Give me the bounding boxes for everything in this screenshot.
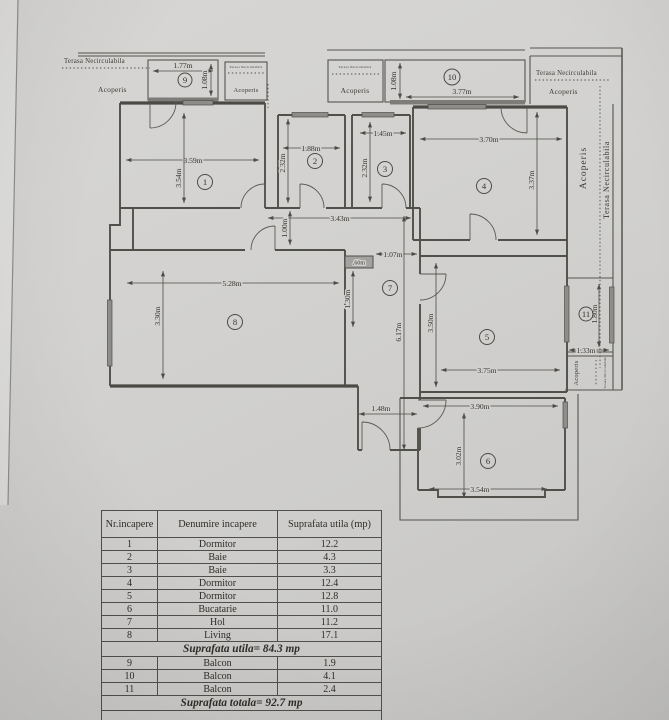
- terasa-label: Terasa Necirculabila: [536, 70, 597, 77]
- dim-balcony10-depth: 1.08m: [389, 71, 398, 90]
- table-cell: 12.2: [278, 538, 382, 551]
- terasa-label-small: Terasa Necirculabila: [230, 65, 263, 69]
- dim-corridor-height: 1.00m: [280, 218, 289, 237]
- room-number-11: 11: [582, 309, 590, 319]
- roof-outline: [78, 48, 622, 520]
- dim-room8-width: 5.28m: [222, 279, 241, 288]
- dim-hall-width: 1.07m: [383, 250, 402, 259]
- subtotal-text: Suprafata utila= 84.3 mp: [102, 642, 382, 657]
- table-cell: 11: [102, 683, 158, 696]
- dim-room4-width: 3.70m: [479, 135, 498, 144]
- terrace-left: Terasa Necirculabila Acoperis: [62, 58, 150, 94]
- room-5: 3.50m 3.75m 5: [426, 263, 560, 387]
- table-cell: 8: [102, 629, 158, 642]
- room-number-6: 6: [486, 456, 491, 466]
- acoperis-label: Acoperis: [549, 87, 578, 96]
- paper-edge: [0, 0, 18, 505]
- table-cell: Dormitor: [158, 538, 278, 551]
- dim-room8-height: 3.30m: [153, 306, 162, 325]
- table-cell: Dormitor: [158, 577, 278, 590]
- table-cell: Bucatarie: [158, 603, 278, 616]
- empty-row: [102, 711, 382, 720]
- room-number-8: 8: [233, 317, 237, 327]
- table-row: 8Living17.1: [102, 629, 382, 642]
- subtotal-row: Suprafata utila= 84.3 mp: [102, 642, 382, 657]
- table-cell: 6: [102, 603, 158, 616]
- table-cell: 11.0: [278, 603, 382, 616]
- room-number-1: 1: [203, 177, 207, 187]
- table-cell: 4: [102, 577, 158, 590]
- room-number-2: 2: [313, 156, 317, 166]
- table-cell: 11.2: [278, 616, 382, 629]
- hall-7: 3.43m 1.00m 1.07m .60m 1.30m 6.17m 1.48m…: [268, 211, 417, 450]
- table-cell: 12.8: [278, 590, 382, 603]
- table-row: 10Balcon4.1: [102, 670, 382, 683]
- table-cell: Hol: [158, 616, 278, 629]
- table-cell: Balcon: [158, 657, 278, 670]
- acoperis-label: Acoperis: [98, 85, 127, 94]
- dim-balcony9-depth: 1.08m: [200, 70, 209, 89]
- table-cell: Balcon: [158, 683, 278, 696]
- room-2: 1.88m 2.32m 2: [278, 119, 340, 203]
- table-cell: Baie: [158, 551, 278, 564]
- dim-room3-width: 1.45m: [373, 129, 392, 138]
- table-cell: 5: [102, 590, 158, 603]
- dim-hall-height: 6.17m: [394, 322, 403, 341]
- total-row: Suprafata totala= 92.7 mp: [102, 696, 382, 711]
- acoperis-label: Acoperis: [341, 86, 370, 95]
- table-row: 1Dormitor12.2: [102, 538, 382, 551]
- scanned-floor-plan-photo: Terasa Necirculabila Acoperis 1.77m 1.08…: [0, 0, 669, 720]
- table-row: 9Balcon1.9: [102, 657, 382, 670]
- room-number-10: 10: [448, 72, 457, 82]
- table-cell: Living: [158, 629, 278, 642]
- table-cell: Dormitor: [158, 590, 278, 603]
- dim-balcony11-height: 1.80m: [590, 304, 599, 323]
- room-6: 3.90m 3.02m 3.54m 6: [423, 402, 558, 498]
- room-number-7: 7: [388, 283, 393, 293]
- table-cell: 3: [102, 564, 158, 577]
- room-4: 3.70m 3.37m 4: [420, 112, 562, 235]
- dim-room1-height: 3.54m: [174, 168, 183, 187]
- acoperis-label-vertical: Acoperis: [579, 147, 589, 189]
- room-number-3: 3: [383, 164, 387, 174]
- acoperis-box-left: Terasa Necirculabila Acoperis: [225, 62, 268, 108]
- terasa-label-vertical: Terasa Necirculabila: [602, 141, 611, 219]
- table-cell: 1: [102, 538, 158, 551]
- dim-room5-width: 3.75m: [477, 366, 496, 375]
- table-row: 7Hol11.2: [102, 616, 382, 629]
- table-cell: Baie: [158, 564, 278, 577]
- dim-room6-width-bottom: 3.54m: [470, 485, 489, 494]
- table-cell: 17.1: [278, 629, 382, 642]
- table-cell: 1.9: [278, 657, 382, 670]
- acoperis-label-vertical: Acoperis: [573, 360, 580, 385]
- dim-balcony10-width: 3.77m: [452, 87, 471, 96]
- table-cell: 4.1: [278, 670, 382, 683]
- table-row: 11Balcon2.4: [102, 683, 382, 696]
- dim-room2-height: 2.32m: [278, 153, 287, 172]
- dim-niche-width: .60m: [353, 261, 366, 267]
- table-header-nr: Nr.incapere: [102, 511, 158, 538]
- room-8: 5.28m 3.30m 8: [127, 271, 339, 379]
- dim-niche-height: 1.30m: [343, 289, 352, 308]
- dim-room4-height: 3.37m: [527, 170, 536, 189]
- table-cell: 10: [102, 670, 158, 683]
- dim-room2-width: 1.88m: [301, 144, 320, 153]
- acoperis-box-middle: Terasa Necirculabila Acoperis: [328, 60, 383, 102]
- acoperis-label: Acoperis: [233, 87, 258, 94]
- dim-room6-width-top: 3.90m: [470, 402, 489, 411]
- table-header-row: Nr.incapere Denumire incapere Suprafata …: [102, 511, 382, 538]
- room-3: 1.45m 2.32m 3: [360, 122, 406, 202]
- table-row: 4Dormitor12.4: [102, 577, 382, 590]
- dim-balcony11-width: 1.33m: [576, 346, 595, 355]
- room-1: 3.59m 3.54m 1: [126, 113, 259, 203]
- table-row: 5Dormitor12.8: [102, 590, 382, 603]
- dim-room5-height: 3.50m: [426, 313, 435, 332]
- balcony-10: 1.08m 3.77m 10: [385, 60, 525, 105]
- table-cell: 12.4: [278, 577, 382, 590]
- dim-room6-height: 3.02m: [454, 446, 463, 465]
- dim-room1-width: 3.59m: [183, 156, 202, 165]
- dim-entrance-width: 1.48m: [371, 404, 390, 413]
- apartment-walls: [110, 103, 567, 497]
- table-cell: 3.3: [278, 564, 382, 577]
- windows: [108, 101, 570, 429]
- room-number-4: 4: [482, 181, 487, 191]
- balcony-9: 1.77m 1.08m 9: [148, 60, 218, 102]
- table-header-denumire: Denumire incapere: [158, 511, 278, 538]
- table-header-suprafata: Suprafata utila (mp): [278, 511, 382, 538]
- table-row: 6Bucatarie11.0: [102, 603, 382, 616]
- table-cell: 4.3: [278, 551, 382, 564]
- terasa-label-small: Terasa Necirculabila: [339, 65, 372, 69]
- table-row: 2Baie4.3: [102, 551, 382, 564]
- room-number-5: 5: [485, 332, 489, 342]
- table-cell: 2: [102, 551, 158, 564]
- acoperis-box-bottom-right: Acoperis Terasa Necirculabila: [573, 357, 607, 389]
- terasa-label: Terasa Necirculabila: [64, 58, 125, 65]
- table-cell: 2.4: [278, 683, 382, 696]
- table-cell: Balcon: [158, 670, 278, 683]
- dim-balcony9-width: 1.77m: [173, 61, 192, 70]
- area-table: Nr.incapere Denumire incapere Suprafata …: [101, 510, 382, 720]
- total-text: Suprafata totala= 92.7 mp: [102, 696, 382, 711]
- terrace-right-strip: Acoperis Terasa Necirculabila: [579, 86, 611, 368]
- room-number-9: 9: [183, 75, 187, 85]
- dim-corridor-width: 3.43m: [330, 214, 349, 223]
- terasa-label-vertical-small: Terasa Necirculabila: [603, 357, 607, 389]
- terrace-right-top: Terasa Necirculabila Acoperis: [535, 70, 610, 96]
- table-cell: 7: [102, 616, 158, 629]
- dim-room3-height: 2.32m: [360, 158, 369, 177]
- table-row: 3Baie3.3: [102, 564, 382, 577]
- table-cell: 9: [102, 657, 158, 670]
- balcony-11: 1.80m 1.33m 11: [567, 278, 614, 355]
